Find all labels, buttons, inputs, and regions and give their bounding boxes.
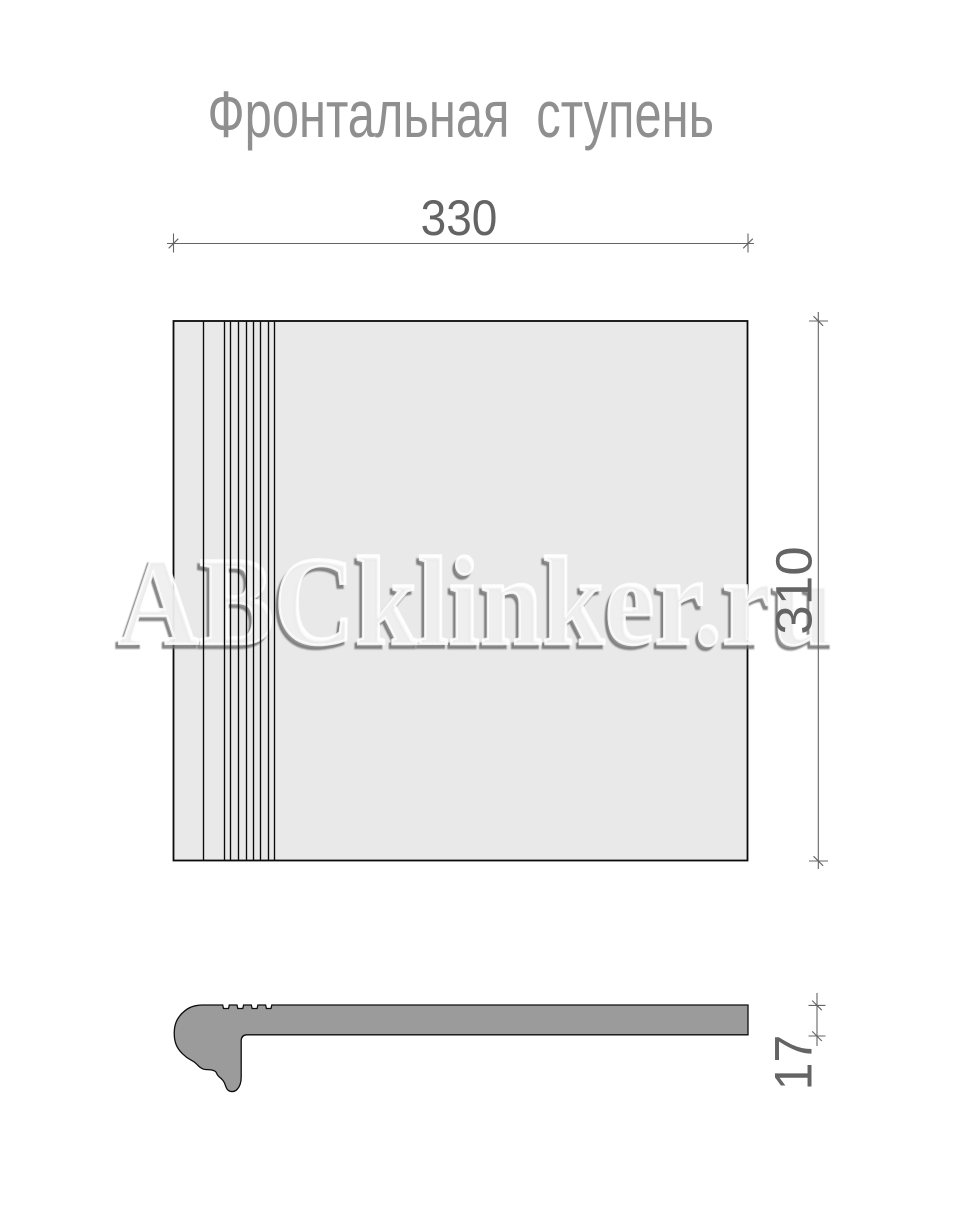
- svg-text:330: 330: [421, 191, 498, 246]
- svg-text:Фронтальная ступень: Фронтальная ступень: [208, 78, 715, 152]
- svg-text:ABCklinker.ru: ABCklinker.ru: [118, 531, 834, 672]
- svg-text:310: 310: [766, 546, 823, 634]
- svg-text:17: 17: [763, 1035, 823, 1090]
